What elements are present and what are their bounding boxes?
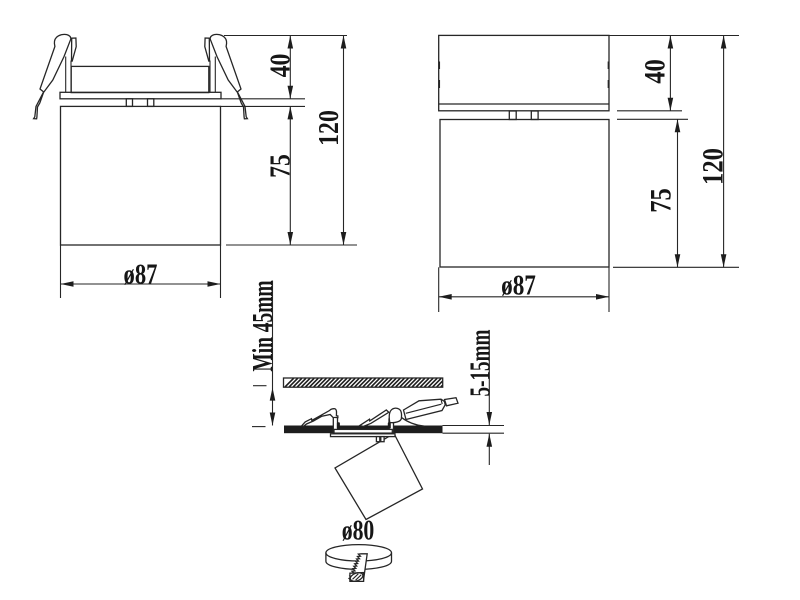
svg-text:Min 45mm: Min 45mm [247,280,279,372]
svg-text:5-15mm: 5-15mm [465,329,497,396]
svg-text:75: 75 [644,188,677,213]
svg-text:75: 75 [263,154,296,178]
svg-text:ø87: ø87 [501,269,536,301]
svg-text:40: 40 [263,54,296,78]
svg-text:ø87: ø87 [124,258,158,290]
svg-text:120: 120 [696,148,729,185]
svg-text:ø80: ø80 [342,513,375,546]
svg-text:120: 120 [312,110,345,146]
svg-text:40: 40 [638,59,671,84]
